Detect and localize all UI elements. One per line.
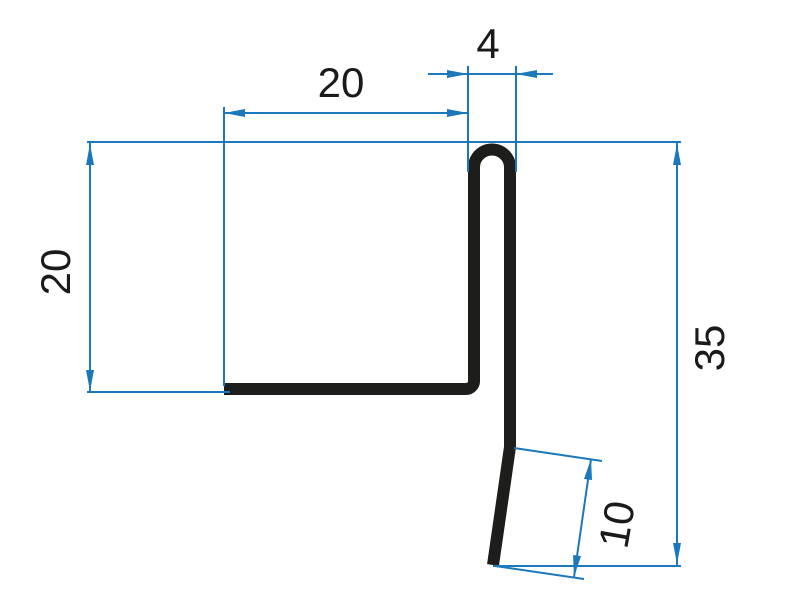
drawing-canvas: 20 4 20 35 10	[0, 0, 800, 600]
arrow-right-icon	[447, 109, 468, 117]
arrow-down-icon	[673, 543, 681, 564]
dimension-overall-height: 35	[673, 142, 733, 566]
dimension-label-inner-height: 20	[32, 249, 79, 296]
extension-line-kick-top	[514, 448, 602, 461]
arrow-up-icon	[673, 144, 681, 165]
arrow-left-icon	[224, 109, 245, 117]
arrow-up-icon	[584, 459, 592, 480]
extension-line-kick-bottom	[495, 566, 584, 579]
arrow-right-icon	[447, 70, 468, 78]
profile-dimension-drawing: 20 4 20 35 10	[0, 0, 800, 600]
arrow-left-icon	[516, 70, 537, 78]
arrow-down-icon	[86, 370, 94, 391]
dimension-drip-kick: 10	[573, 459, 644, 577]
dimension-top-flange: 20	[224, 59, 468, 117]
dimension-inner-height: 20	[32, 142, 94, 392]
dimension-label-drip-kick: 10	[590, 497, 644, 551]
dimension-hem: 4	[428, 20, 553, 78]
dimension-label-hem: 4	[476, 20, 499, 67]
dimension-label-overall-height: 35	[686, 325, 733, 372]
profile-outline	[224, 150, 510, 566]
dimension-label-top-flange: 20	[318, 59, 365, 106]
arrow-up-icon	[86, 144, 94, 165]
